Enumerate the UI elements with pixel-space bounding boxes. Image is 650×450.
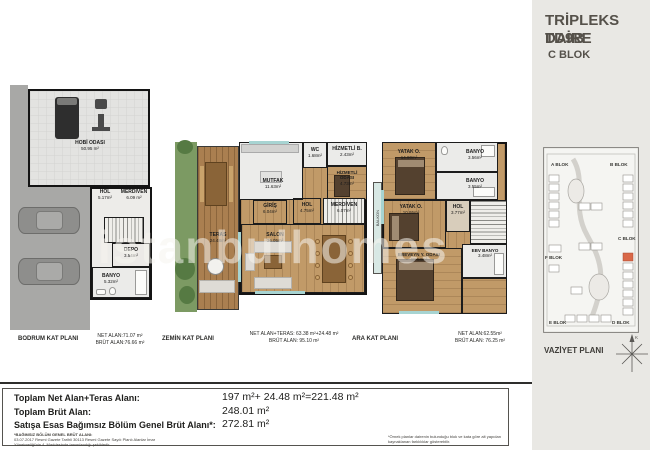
- room-label-banyo1: BANYO 3.56m²: [455, 149, 495, 160]
- divider-line: [0, 382, 532, 384]
- block-label-c: C BLOK: [618, 236, 636, 241]
- bed-icon: [395, 157, 425, 195]
- room-label-merdiven: MERDİVEN 6.09 m²: [116, 189, 152, 200]
- tree-icon: [175, 258, 195, 280]
- room-label-salon: SALON 36.05m²: [247, 232, 303, 243]
- bodrum-plan-title: BODRUM KAT PLANI: [18, 336, 78, 342]
- car-roof: [36, 262, 63, 281]
- outdoor-sofa-icon: [199, 280, 235, 293]
- room-label-balkon: BALKON: [375, 210, 380, 226]
- treadmill-icon: [55, 97, 79, 139]
- window: [249, 141, 289, 144]
- unit-code: TD9B: [545, 30, 584, 48]
- car-icon: [18, 207, 80, 234]
- floor-plan-sheet: HOBİ ODASI 50.95 m² HOL 5.17m² MERDİVEN …: [0, 0, 650, 450]
- coffee-table-icon: [264, 255, 282, 269]
- window: [255, 291, 305, 294]
- summary-row-label: Toplam Net Alan+Teras Alanı:: [14, 393, 140, 403]
- block-label-e: E BLOK: [549, 320, 567, 325]
- room-label-ebv-banyo: EBV BANYO 3.48m²: [465, 248, 505, 259]
- room-label-giris: GİRİŞ 6.04m²: [253, 203, 287, 214]
- hobby-room: [28, 89, 150, 187]
- zemin-plan-areas: NET ALAN+TERAS: 63.38 m²+24.48 m² BRÜT A…: [244, 331, 344, 345]
- highlighted-unit: [623, 253, 633, 261]
- bodrum-floor-plan: HOBİ ODASI 50.95 m² HOL 5.17m² MERDİVEN …: [10, 85, 170, 330]
- zemin-plan-title: ZEMİN KAT PLANI: [162, 336, 214, 342]
- room-label-depo: DEPO 3.54m²: [112, 247, 150, 258]
- summary-row-label: Satışa Esas Bağımsız Bölüm Genel Brüt Al…: [14, 420, 216, 430]
- tree-icon: [179, 286, 195, 304]
- toilet-icon: [441, 146, 448, 155]
- bed-icon: [396, 259, 434, 301]
- bed-icon: [389, 213, 419, 241]
- stairs: [104, 217, 144, 243]
- stairs: [470, 200, 507, 244]
- zemin-floor-plan: TERAS 24.48m²: [175, 140, 367, 312]
- dressing-room: [462, 278, 507, 314]
- block-label-a: A BLOK: [551, 162, 569, 167]
- room-label-mutfak: MUTFAK 11.63m²: [245, 178, 301, 189]
- summary-row-value: 248.01 m²: [222, 405, 269, 417]
- armchair-icon: [245, 253, 255, 271]
- ara-plan-title: ARA KAT PLANI: [352, 336, 398, 342]
- window: [399, 311, 439, 314]
- dining-table-icon: [322, 235, 346, 283]
- toilet-icon: [109, 287, 116, 295]
- round-table-icon: [207, 258, 224, 275]
- bathtub-icon: [135, 270, 147, 295]
- summary-row-value: 272.81 m²: [222, 418, 269, 430]
- site-plan-label: VAZİYET PLANI: [544, 346, 603, 355]
- summary-row-value: 197 m²+ 24.48 m²=221.48 m²: [222, 391, 359, 403]
- sofa-icon: [254, 277, 292, 289]
- block-label-f: F BLOK: [545, 255, 563, 260]
- chair-icon: [348, 275, 353, 280]
- compass-north-label: K: [635, 335, 638, 340]
- room-label-hobi: HOBİ ODASI 50.95 m²: [35, 140, 145, 151]
- kitchen: [239, 142, 303, 200]
- room-label-banyo2: BANYO 3.55m²: [455, 178, 495, 189]
- block-label-b: B BLOK: [610, 162, 628, 167]
- bench-icon: [200, 166, 204, 202]
- chair-icon: [315, 251, 320, 256]
- footnote-left-body: 03.07.2017 Resmi Gazete Tarihli 30113 Re…: [14, 437, 174, 447]
- chair-icon: [315, 275, 320, 280]
- sink-icon: [96, 289, 106, 295]
- room-label-teras: TERAS 24.48m²: [197, 232, 239, 243]
- room-label-hizmetli-o: HİZMETLİ ODASI 4.73m²: [329, 170, 365, 186]
- block-name: C BLOK: [548, 49, 590, 61]
- room-label-hol: HOL 4.75m²: [292, 202, 322, 213]
- footnote-right: *Örnek planlar dairenin bulunduğu blok v…: [388, 434, 506, 444]
- room-label-banyo: BANYO 5.32m²: [94, 273, 128, 284]
- bodrum-plan-areas: NET ALAN:71.07 m² BRÜT ALAN:76.66 m²: [88, 333, 152, 347]
- bench-icon: [229, 166, 233, 202]
- outdoor-table-icon: [205, 162, 227, 206]
- right-panel: TRİPLEKS DAİRE TD9B C BLOK: [532, 0, 650, 450]
- chair-icon: [348, 239, 353, 244]
- summary-row-label: Toplam Brüt Alan:: [14, 407, 91, 417]
- site-plan-map: A BLOK B BLOK C BLOK F BLOK E BLOK D BLO…: [543, 147, 639, 333]
- compass-icon: K: [614, 332, 650, 374]
- gym-equipment-icon: [92, 99, 110, 137]
- counter: [241, 144, 299, 153]
- chair-icon: [315, 239, 320, 244]
- room-label-hizmetli-b: HİZMETLİ B. 2.43m²: [325, 146, 369, 157]
- room-label-hol: HOL 3.77m²: [445, 204, 471, 215]
- chair-icon: [348, 263, 353, 268]
- room-label-yatak2: YATAK O. 10.95m²: [389, 204, 433, 215]
- room-label-ebeveyn: EBEVEYN Y. ODASI 18.58m²: [387, 252, 451, 263]
- block-label-d: D BLOK: [612, 320, 630, 325]
- car-roof: [36, 211, 63, 230]
- ara-floor-plan: BALKON YATAK O. 14.90m² BA: [373, 142, 507, 322]
- chair-icon: [315, 263, 320, 268]
- chair-icon: [348, 251, 353, 256]
- ara-plan-areas: NET ALAN:62.55m² BRÜT ALAN: 76.25 m²: [440, 331, 520, 345]
- room-label-merdiven: MERDİVEN 6.07m²: [322, 202, 366, 213]
- room-label-yatak1: YATAK O. 14.90m²: [387, 149, 431, 160]
- tree-icon: [177, 140, 193, 154]
- car-icon: [18, 258, 80, 285]
- window: [381, 190, 384, 224]
